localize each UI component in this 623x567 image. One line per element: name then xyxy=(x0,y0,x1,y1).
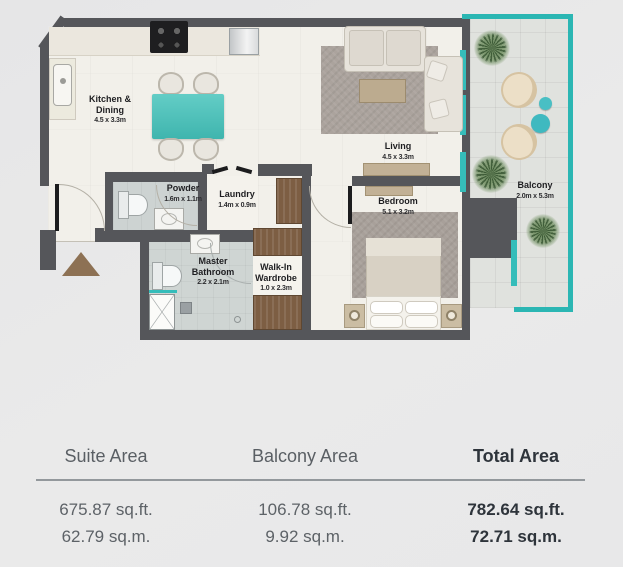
dining-chair xyxy=(158,138,184,161)
room-name: Living xyxy=(385,141,412,151)
kitchen-sink-icon xyxy=(53,64,72,106)
wall-powder-top xyxy=(105,172,207,182)
dining-chair xyxy=(158,72,184,95)
total-area-header: Total Area xyxy=(431,446,601,467)
bed-pillow xyxy=(370,301,403,314)
dining-chair xyxy=(193,72,219,95)
tv-console-living xyxy=(363,163,430,176)
wall-powder-left xyxy=(105,172,113,232)
balcony-area-header: Balcony Area xyxy=(220,446,390,467)
room-label-balcony: Balcony 2.0m x 5.3m xyxy=(505,180,565,201)
suite-area-sqm: 62.79 sq.m. xyxy=(21,527,191,547)
room-dims: 4.5 x 3.3m xyxy=(88,117,132,125)
sink-faucet-icon xyxy=(60,78,66,84)
room-dims: 4.5 x 3.3m xyxy=(368,154,428,162)
room-dims: 2.0m x 5.3m xyxy=(505,193,565,201)
dining-chair xyxy=(193,138,219,161)
table-divider xyxy=(36,479,585,481)
sofa-cushion xyxy=(349,30,384,66)
room-name: Kitchen & Dining xyxy=(89,94,131,115)
wall-left-upper xyxy=(40,44,49,186)
room-label-living: Living 4.5 x 3.3m xyxy=(368,141,428,162)
balcony-glass-right xyxy=(568,14,573,312)
room-name: Bedroom xyxy=(378,196,418,206)
wall-bath-left xyxy=(140,242,149,332)
closet xyxy=(253,295,302,330)
room-dims: 1.0 x 2.3m xyxy=(249,285,303,293)
room-label-master-bathroom: Master Bathroom 2.2 x 2.1m xyxy=(183,256,243,288)
suite-area-header: Suite Area xyxy=(21,446,191,467)
shower-glass xyxy=(149,290,177,293)
balcony-area-sqft: 106.78 sq.ft. xyxy=(220,500,390,520)
room-label-walkin-wardrobe: Walk-In Wardrobe 1.0 x 2.3m xyxy=(249,262,303,294)
room-name: Balcony xyxy=(517,180,552,190)
balcony-area-sqm: 9.92 sq.m. xyxy=(220,527,390,547)
room-label-bedroom: Bedroom 5.1 x 3.2m xyxy=(368,196,428,217)
room-label-powder: Powder 1.6m x 1.1m xyxy=(157,183,209,204)
dining-table xyxy=(152,94,224,139)
room-name: Walk-In Wardrobe xyxy=(255,262,297,283)
wall-living-bedroom xyxy=(352,176,463,186)
room-dims: 1.4m x 0.9m xyxy=(208,202,266,210)
bed-pillow xyxy=(405,315,438,328)
room-name: Master Bathroom xyxy=(192,256,235,277)
room-label-laundry: Laundry 1.4m x 0.9m xyxy=(208,189,266,210)
bath-toilet-bowl-icon xyxy=(162,265,182,287)
powder-toilet-bowl-icon xyxy=(128,194,148,216)
coffee-table xyxy=(359,79,406,103)
sofa-cushion xyxy=(386,30,421,66)
stove-icon xyxy=(150,21,188,53)
room-dims: 1.6m x 1.1m xyxy=(157,196,209,204)
glass-door-bedroom xyxy=(511,240,517,286)
bed-pillow xyxy=(370,315,403,328)
side-table-icon xyxy=(539,97,552,110)
room-name: Powder xyxy=(167,183,200,193)
room-dims: 5.1 x 3.2m xyxy=(368,209,428,217)
balcony-glass-top xyxy=(462,14,573,19)
wall-balcony-block xyxy=(462,198,517,258)
bed-pillow xyxy=(405,301,438,314)
wall-left-corner xyxy=(40,230,56,270)
floor-plan: Kitchen & Dining 4.5 x 3.3m Living 4.5 x… xyxy=(0,0,623,420)
room-dims: 2.2 x 2.1m xyxy=(183,279,243,287)
nightstand-lamp-icon xyxy=(446,310,457,321)
entry-threshold xyxy=(56,241,95,242)
shower-tray-icon xyxy=(149,294,175,330)
fridge-icon xyxy=(229,28,259,55)
suite-area-sqft: 675.87 sq.ft. xyxy=(21,500,191,520)
plant-icon xyxy=(474,30,510,66)
nightstand-lamp-icon xyxy=(349,310,360,321)
total-area-sqm: 72.71 sq.m. xyxy=(431,527,601,547)
shower-head-icon xyxy=(180,302,192,314)
closet xyxy=(276,178,302,224)
total-area-sqft: 782.64 sq.ft. xyxy=(431,500,601,520)
glass-door-3 xyxy=(460,152,466,192)
room-name: Laundry xyxy=(219,189,255,199)
closet xyxy=(253,228,302,256)
balcony-glass-bottom xyxy=(514,307,573,312)
entrance-marker-icon xyxy=(62,252,100,276)
bedroom-dresser xyxy=(365,186,413,196)
floorplan-page: { "plan": { "rooms": { "kitchen": {"name… xyxy=(0,0,623,567)
bed-fold xyxy=(366,238,441,256)
side-table-icon xyxy=(531,114,550,133)
plant-icon xyxy=(526,214,560,248)
floor-drain-icon xyxy=(234,316,241,323)
room-label-kitchen: Kitchen & Dining 4.5 x 3.3m xyxy=(88,94,132,126)
